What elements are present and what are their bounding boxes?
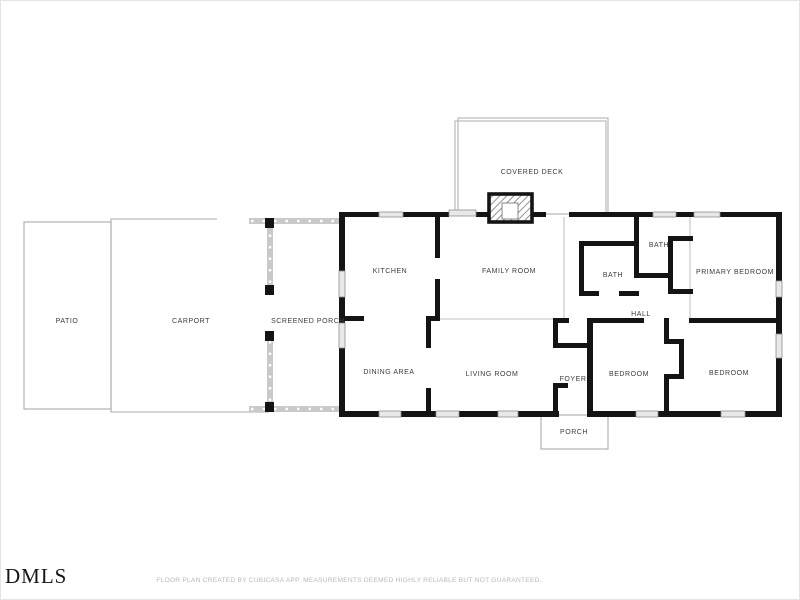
room-label-primary-bedroom: PRIMARY BEDROOM (696, 269, 774, 276)
room-label-bedroom-right: BEDROOM (709, 370, 749, 377)
room-label-foyer: FOYER (560, 376, 587, 383)
fireplace-icon (489, 194, 532, 222)
room-label-covered-deck: COVERED DECK (501, 169, 564, 176)
room-label-kitchen: KITCHEN (373, 268, 408, 275)
floor-plan-page: PATIO CARPORT SCREENED PORCH COVERED DEC… (0, 0, 800, 600)
disclaimer-text: FLOOR PLAN CREATED BY CUBICASA APP. MEAS… (156, 577, 541, 584)
room-label-patio: PATIO (56, 318, 79, 325)
dmls-logo: DMLS (5, 564, 67, 588)
room-label-bedroom-middle: BEDROOM (609, 371, 649, 378)
open-boundary-lines (440, 217, 690, 319)
room-label-family-room: FAMILY ROOM (482, 268, 536, 275)
interior-walls (345, 217, 776, 416)
carport-outline (111, 219, 269, 412)
room-label-hall: HALL (631, 311, 651, 318)
room-label-bath-upper: BATH (649, 242, 669, 249)
patio-outline (24, 222, 111, 409)
floor-plan-canvas: PATIO CARPORT SCREENED PORCH COVERED DEC… (1, 1, 800, 600)
screened-porch-walls (249, 218, 339, 412)
room-label-screened-porch: SCREENED PORCH (271, 318, 345, 325)
room-label-bath-lower: BATH (603, 272, 623, 279)
room-label-carport: CARPORT (172, 318, 210, 325)
room-label-porch: PORCH (560, 429, 588, 436)
room-label-dining-area: DINING AREA (363, 369, 414, 376)
room-label-living-room: LIVING ROOM (466, 371, 519, 378)
footer: DMLS FLOOR PLAN CREATED BY CUBICASA APP.… (5, 564, 542, 588)
